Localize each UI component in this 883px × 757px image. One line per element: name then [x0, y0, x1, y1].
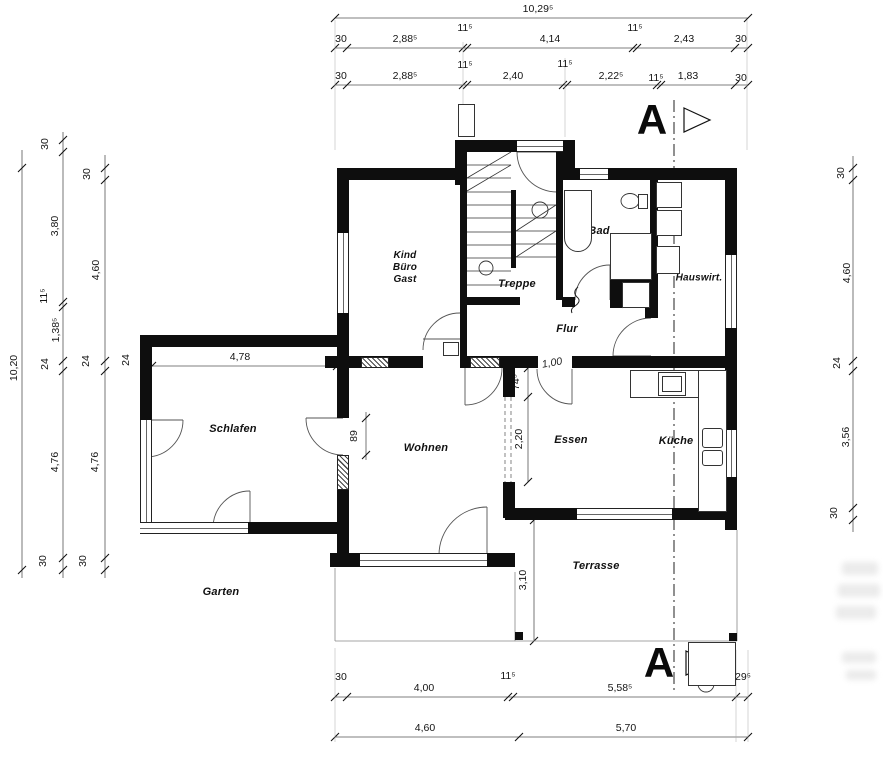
wall-segment — [140, 347, 152, 420]
washing-machine — [656, 182, 682, 208]
dryer — [656, 210, 682, 236]
dim-label: 30 — [828, 507, 840, 519]
bleed-through-artifact — [836, 606, 876, 619]
dim-label: 30 — [37, 555, 49, 567]
dim-label: 30 — [835, 167, 847, 179]
wall-segment — [248, 522, 337, 534]
dim-label: 2,88⁵ — [393, 70, 418, 82]
dim-label: 24 — [39, 358, 51, 370]
plan-linework — [0, 0, 883, 757]
hatched-pier — [337, 455, 349, 490]
wall-segment — [556, 152, 563, 300]
stove-inner — [662, 376, 682, 392]
dim-label: 11⁵ — [457, 22, 472, 34]
dim-label: 24 — [831, 357, 843, 369]
dim-label: 1,83 — [678, 70, 698, 82]
dim-label: 11⁵ — [457, 59, 472, 71]
door-swing-arc — [537, 369, 572, 404]
dim-terrace-depth: 3,10 — [517, 570, 529, 590]
dim-label: 4,60 — [841, 263, 853, 283]
dim-label: 30 — [77, 555, 89, 567]
dim-label: 2,88⁵ — [393, 33, 418, 45]
room-label-kueche: Küche — [659, 435, 694, 447]
wall-segment — [487, 553, 515, 567]
dim-label: 4,60 — [415, 722, 435, 734]
wall-segment — [337, 168, 462, 180]
room-label-kind: Kind Büro Gast — [393, 250, 417, 286]
wall-segment — [511, 190, 516, 268]
chimney — [458, 104, 475, 137]
section-arrow-top — [684, 108, 710, 132]
window — [140, 420, 152, 522]
hatched-pier — [470, 357, 500, 368]
dim-label: 4,00 — [414, 682, 434, 694]
room-label-wohnen: Wohnen — [404, 442, 448, 454]
wall-segment — [729, 633, 737, 641]
window — [577, 508, 672, 520]
wall-segment — [460, 152, 467, 356]
room-label-kind-line: Gast — [393, 274, 417, 286]
wall-segment — [515, 632, 523, 640]
section-marker-bottom: A — [644, 639, 674, 687]
dim-schlafen-width: 4,78 — [230, 351, 250, 363]
bleed-through-artifact — [838, 584, 880, 597]
window — [580, 168, 608, 180]
wall-segment — [337, 180, 349, 233]
dim-label: 11⁵ — [500, 670, 515, 682]
room-label-flur: Flur — [556, 323, 578, 335]
shower — [610, 233, 652, 280]
wall-segment — [455, 140, 517, 152]
dim-label: 4,76 — [89, 452, 101, 472]
dim-label: 30 — [81, 168, 93, 180]
dim-label: 11⁵ — [557, 58, 572, 70]
hatched-pier — [361, 357, 389, 368]
wall-segment — [330, 553, 360, 567]
dim-label: 2,22⁵ — [599, 70, 624, 82]
appliance — [656, 246, 680, 274]
window — [725, 255, 737, 328]
window — [517, 140, 563, 152]
exterior-stair — [688, 642, 736, 686]
wall-segment — [562, 297, 575, 307]
dim-label: 2,43 — [674, 33, 694, 45]
room-label-hauswirt: Hauswirt. — [676, 273, 723, 284]
wall-segment — [725, 180, 737, 255]
dim-door-width: 89 — [348, 430, 360, 442]
window — [360, 553, 487, 567]
washbasin — [443, 342, 459, 356]
dim-label: 5,58⁵ — [608, 682, 633, 694]
dim-label: 3,56 — [840, 427, 852, 447]
bathtub — [564, 190, 592, 252]
duct-shaft — [622, 282, 650, 308]
wall-segment — [505, 508, 577, 520]
dim-left-total: 10,20 — [8, 355, 20, 381]
floor-plan: Kind Büro Gast Treppe Bad Hauswirt. Flur… — [0, 0, 883, 757]
door-swing-arc — [306, 418, 343, 455]
door-swing-arc — [439, 507, 487, 555]
room-label-essen: Essen — [554, 434, 587, 446]
dim-opening: 2,20 — [513, 429, 525, 449]
dim-label: 3,80 — [49, 216, 61, 236]
sink-bowl — [702, 428, 723, 448]
bleed-through-artifact — [846, 670, 876, 680]
bleed-through-artifact — [842, 652, 876, 663]
dim-label: 4,76 — [49, 452, 61, 472]
door-swing-arc — [613, 318, 651, 356]
room-label-garten: Garten — [203, 586, 240, 598]
section-marker-top: A — [637, 96, 667, 144]
dim-label: 4,14 — [540, 33, 560, 45]
door-swing-arc — [517, 152, 557, 192]
dim-label: 11⁵ — [38, 288, 50, 303]
bleed-through-artifact — [842, 562, 878, 575]
wc-cistern — [638, 194, 648, 209]
door-swing-arc — [575, 265, 610, 300]
opening-dashed — [505, 397, 511, 482]
dim-label: 1,38⁵ — [50, 318, 62, 343]
dim-label: 30 — [335, 70, 347, 82]
wall-segment — [572, 356, 737, 368]
wall-segment — [503, 482, 515, 518]
dim-wall-thickness: 24 — [120, 354, 132, 366]
wall-segment — [503, 368, 515, 397]
dim-label: 11⁵ — [627, 22, 642, 34]
wc-toilet — [621, 194, 639, 209]
window — [337, 233, 349, 313]
dim-label: 30 — [735, 33, 747, 45]
room-label-kind-line: Kind — [393, 250, 417, 262]
terrace-outline — [335, 530, 737, 641]
room-label-treppe: Treppe — [498, 278, 536, 290]
wall-segment — [140, 335, 349, 347]
dim-label: 2,40 — [503, 70, 523, 82]
dim-label: 24 — [80, 355, 92, 367]
dim-label: 30 — [335, 33, 347, 45]
dim-label: 30 — [335, 671, 347, 683]
dim-top-total: 10,29⁵ — [523, 3, 554, 15]
dim-label: 5,70 — [616, 722, 636, 734]
room-label-schlafen: Schlafen — [209, 423, 256, 435]
dim-label: 4,60 — [90, 260, 102, 280]
dim-label: 30 — [39, 138, 51, 150]
room-label-terrasse: Terrasse — [572, 560, 619, 572]
room-label-kind-line: Büro — [393, 262, 417, 274]
window — [140, 522, 248, 534]
dim-label: 29⁵ — [735, 671, 751, 683]
sink-bowl — [702, 450, 723, 466]
door-swing-arc — [465, 368, 502, 405]
wall-segment — [460, 297, 520, 305]
stair-post — [479, 261, 493, 275]
dim-label: 30 — [735, 72, 747, 84]
dim-label: 11⁵ — [648, 72, 663, 84]
